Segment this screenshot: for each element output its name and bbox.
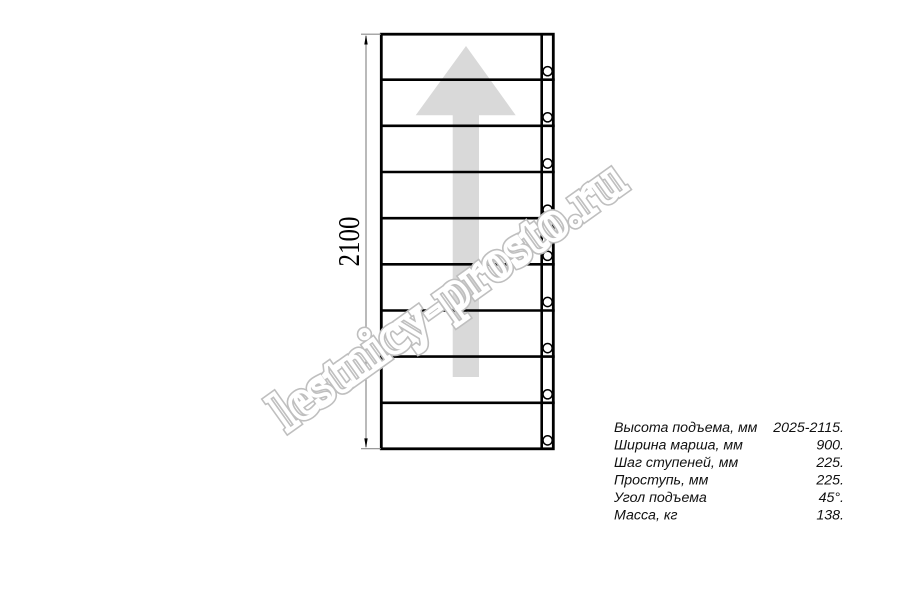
svg-text:Масса, кг: Масса, кг (614, 508, 678, 524)
svg-text:Ширина марша, мм: Ширина марша, мм (614, 438, 743, 454)
svg-text:138.: 138. (816, 508, 844, 524)
svg-text:2100: 2100 (331, 217, 366, 267)
svg-text:45°.: 45°. (819, 490, 844, 506)
svg-text:900.: 900. (816, 438, 844, 454)
svg-text:2025-2115.: 2025-2115. (772, 420, 844, 436)
svg-text:225.: 225. (815, 455, 844, 471)
svg-text:225.: 225. (815, 473, 844, 489)
svg-text:Угол подъема: Угол подъема (613, 490, 707, 506)
svg-text:Проступь, мм: Проступь, мм (614, 473, 709, 489)
svg-text:Шаг ступеней, мм: Шаг ступеней, мм (614, 455, 738, 471)
svg-text:Высота подъема, мм: Высота подъема, мм (614, 420, 758, 436)
